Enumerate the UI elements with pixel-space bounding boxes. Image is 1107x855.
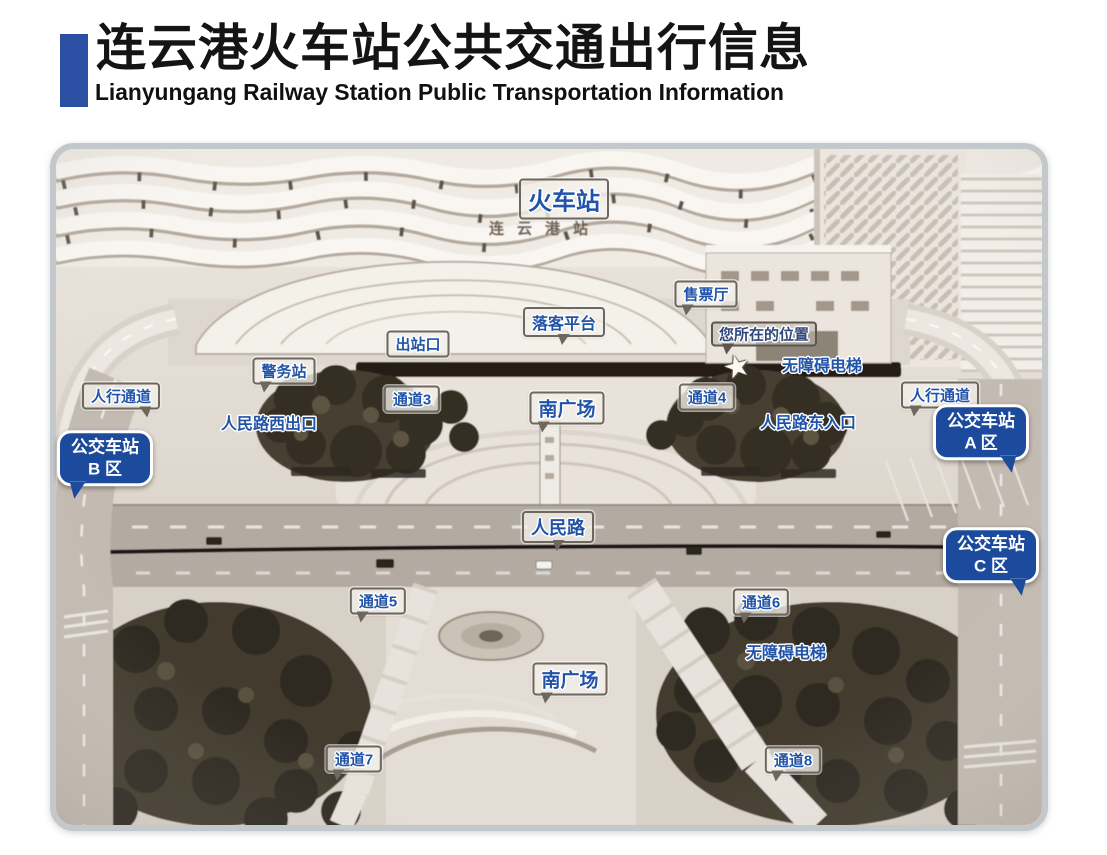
station-map-card bbox=[50, 143, 1048, 831]
title-accent-bar bbox=[60, 34, 88, 107]
station-map-image bbox=[56, 149, 1042, 825]
page: { "header": { "title_zh": "连云港火车站公共交通出行信… bbox=[0, 0, 1107, 855]
page-title-en: Lianyungang Railway Station Public Trans… bbox=[95, 79, 784, 106]
page-title-zh: 连云港火车站公共交通出行信息 bbox=[96, 22, 810, 75]
